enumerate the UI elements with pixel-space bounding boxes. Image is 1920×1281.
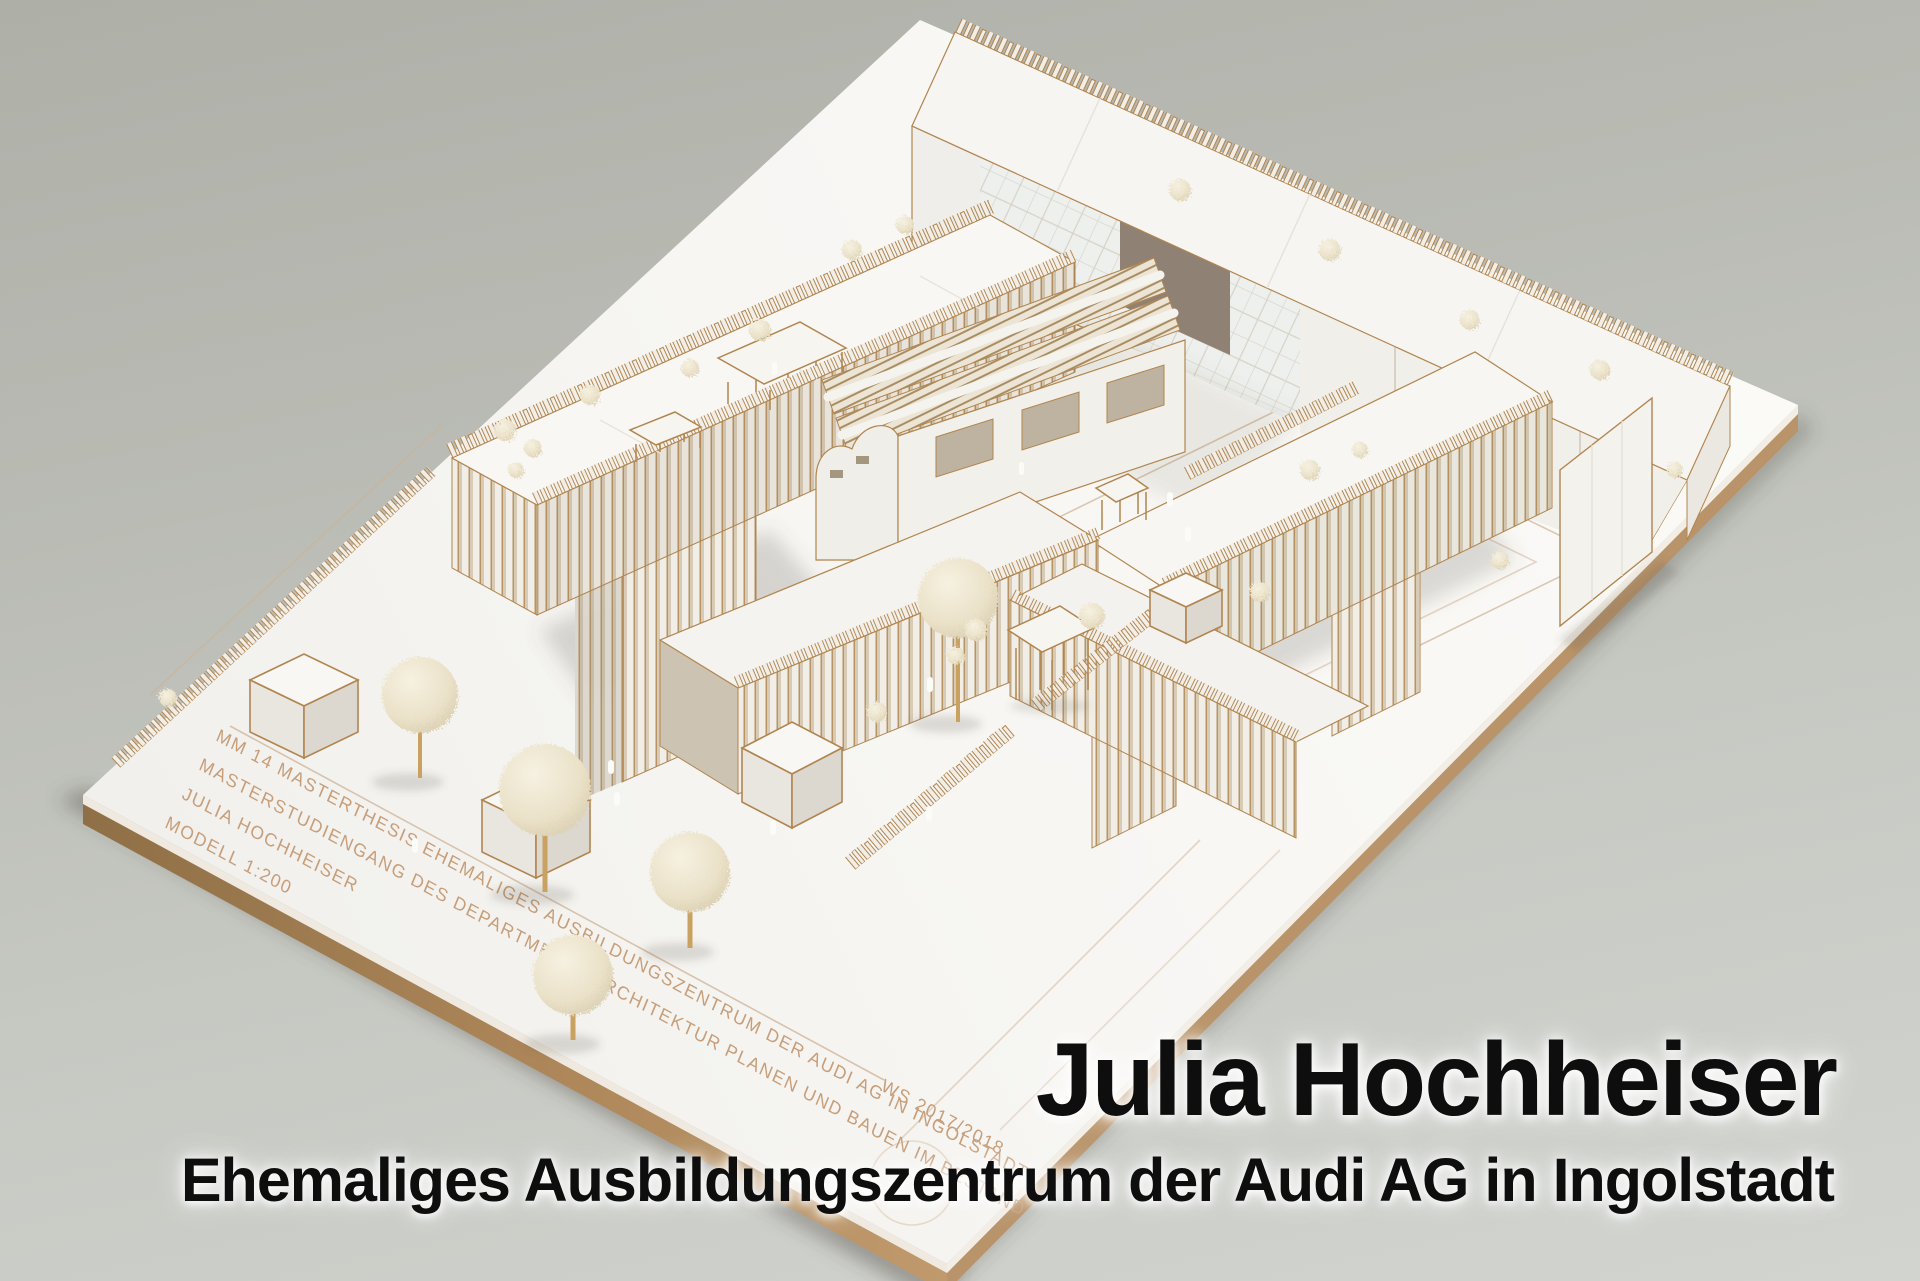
figure bbox=[608, 760, 614, 774]
overlay-project-subtitle: Ehemaliges Ausbildungszentrum der Audi A… bbox=[181, 1150, 1834, 1211]
figure bbox=[1019, 462, 1024, 475]
model-photograph: MM 14 MASTERTHESIS EHEMALIGES AUSBILDUNG… bbox=[0, 0, 1920, 1281]
figure bbox=[614, 792, 620, 806]
figure bbox=[412, 838, 418, 853]
figure bbox=[772, 362, 777, 375]
figure bbox=[926, 806, 932, 821]
figure bbox=[1185, 527, 1191, 542]
overlay-author-title: Julia Hochheiser bbox=[1036, 1028, 1836, 1132]
figure bbox=[1167, 492, 1173, 507]
figure bbox=[770, 820, 776, 835]
figure bbox=[927, 677, 933, 692]
